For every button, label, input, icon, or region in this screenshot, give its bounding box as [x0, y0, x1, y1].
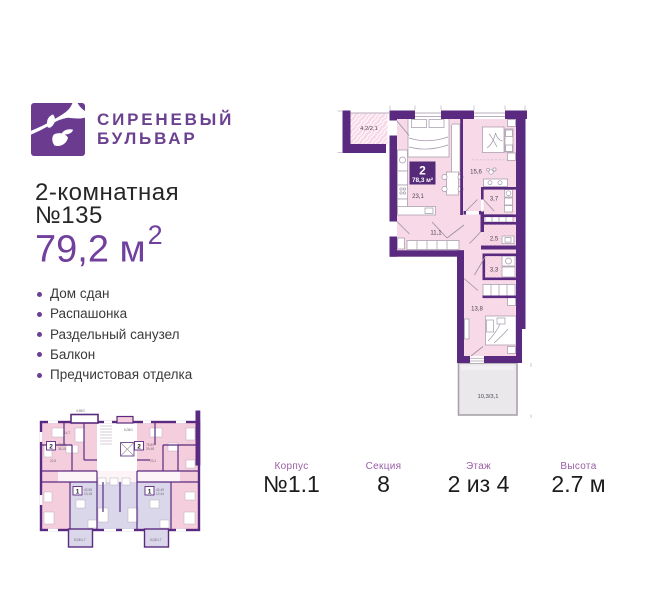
svg-text:2: 2 [137, 444, 141, 451]
svg-text:5,03/1.7: 5,03/1.7 [150, 538, 162, 542]
svg-text:3,3: 3,3 [490, 268, 499, 274]
svg-text:11,1: 11,1 [430, 231, 442, 237]
svg-text:6,05/1: 6,05/1 [124, 428, 133, 432]
svg-text:4,2/2,1: 4,2/2,1 [360, 126, 378, 132]
svg-text:3,7: 3,7 [490, 197, 499, 203]
svg-text:2: 2 [419, 164, 426, 178]
svg-text:23,1: 23,1 [412, 194, 424, 200]
svg-text:22,5: 22,5 [50, 459, 56, 463]
svg-text:2: 2 [49, 444, 53, 451]
svg-text:38,18: 38,18 [58, 447, 66, 451]
svg-text:29,48: 29,48 [146, 447, 154, 451]
svg-text:10,3/3,1: 10,3/3,1 [478, 394, 499, 400]
svg-text:2,5: 2,5 [490, 237, 499, 243]
svg-text:14,7: 14,7 [64, 431, 70, 435]
svg-text:1: 1 [148, 489, 152, 496]
svg-text:1: 1 [76, 489, 80, 496]
svg-text:15,6: 15,6 [470, 170, 482, 176]
svg-text:12,44: 12,44 [156, 492, 164, 496]
svg-text:4,95/2: 4,95/2 [76, 409, 85, 413]
svg-text:5,03/1.7: 5,03/1.7 [74, 538, 86, 542]
svg-text:13,18: 13,18 [84, 492, 92, 496]
svg-text:78,3 м²: 78,3 м² [412, 177, 433, 184]
svg-text:13,8: 13,8 [471, 307, 483, 313]
svg-text:20,1: 20,1 [150, 459, 156, 463]
